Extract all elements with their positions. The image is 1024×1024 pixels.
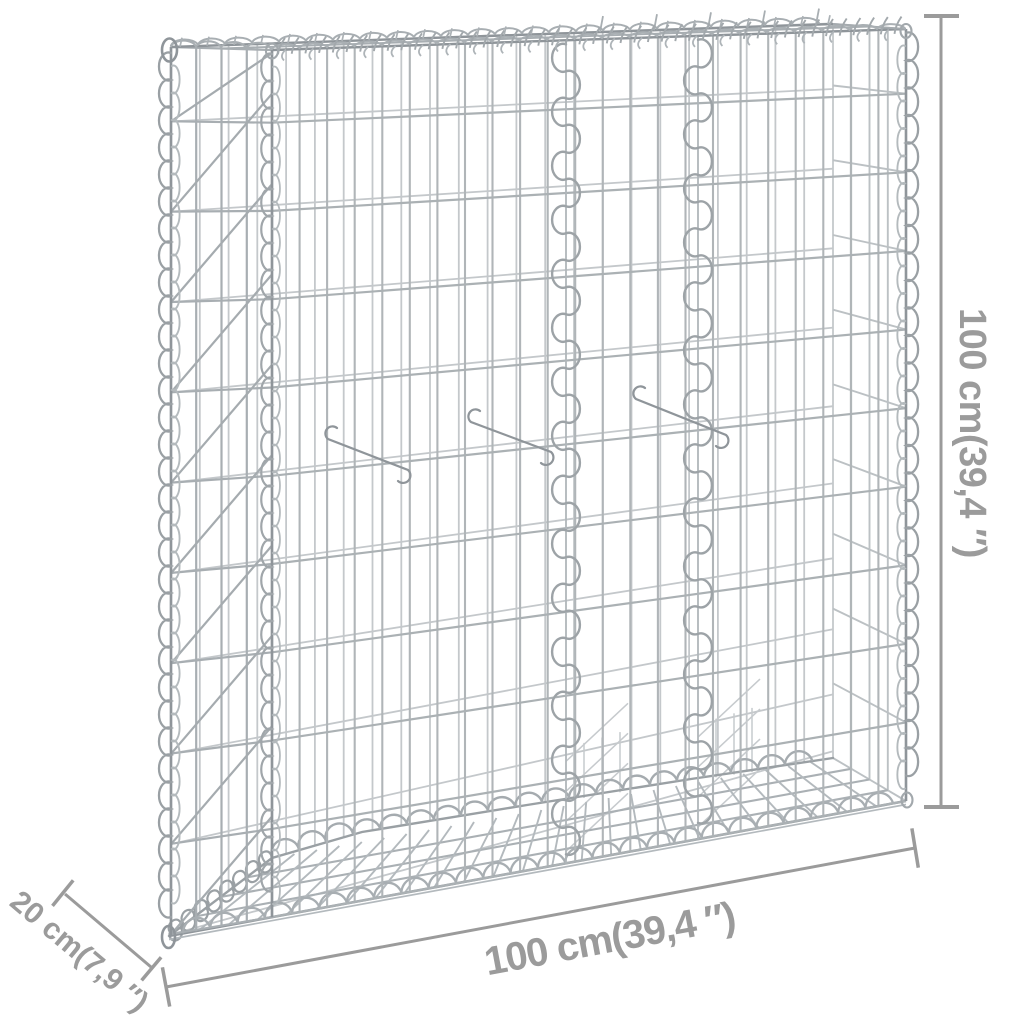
svg-text:100 cm(39,4 ″): 100 cm(39,4 ″) bbox=[951, 308, 993, 558]
